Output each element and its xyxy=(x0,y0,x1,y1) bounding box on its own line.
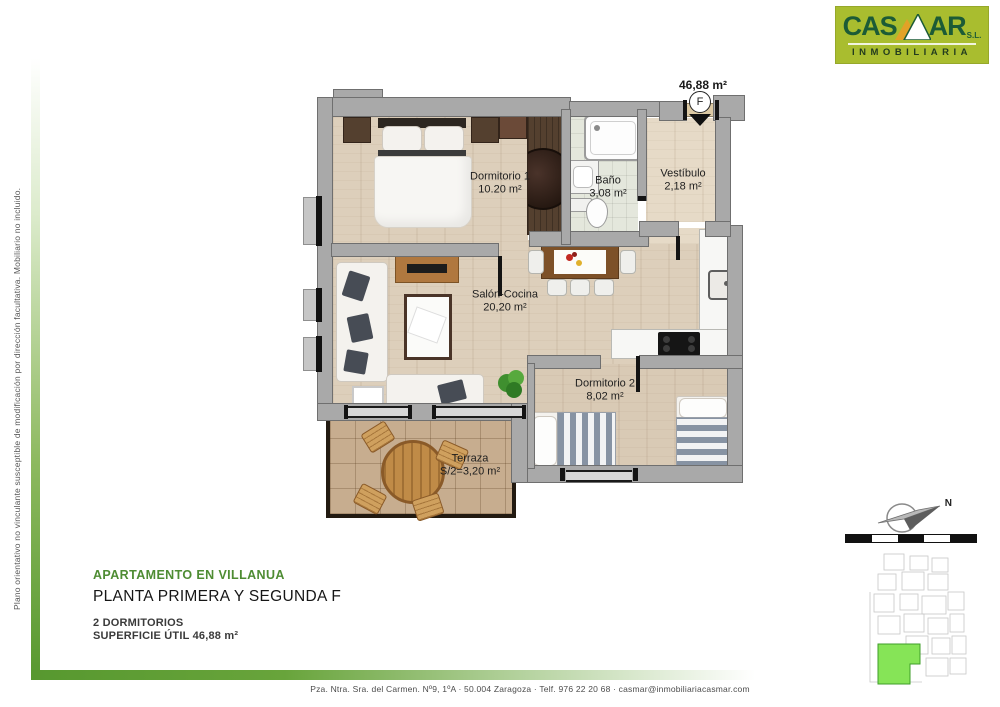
casmar-logo-wordmark: CAS AR S.L. xyxy=(843,13,982,40)
label-dormitorio1: Dormitorio 1 10.20 m² xyxy=(470,171,530,198)
tv-console xyxy=(396,256,458,282)
wardrobe-round-detail xyxy=(528,148,566,210)
wall-dorm2-left xyxy=(528,364,534,468)
sofa-pillow xyxy=(343,349,368,374)
site-key-plan xyxy=(862,552,977,692)
bed1-duvet xyxy=(374,156,472,228)
door-tick-entrance-left xyxy=(683,100,687,120)
logo-tagline: INMOBILIARIA xyxy=(848,43,976,58)
nightstand-left xyxy=(344,118,370,142)
wall-dorm2-top-left xyxy=(528,356,600,368)
room-name: Dormitorio 2 xyxy=(575,378,635,391)
wall-dorm2-top-right xyxy=(640,356,742,368)
scale-bar-segment xyxy=(846,535,872,542)
dining-table xyxy=(542,246,618,278)
room-area: S/2=3,20 m² xyxy=(440,466,500,479)
scale-bar-segment xyxy=(950,535,976,542)
bed1-pillow-left xyxy=(382,126,422,152)
highlighted-unit xyxy=(878,644,920,684)
green-frame-vertical-bar xyxy=(31,58,40,680)
north-label: N xyxy=(945,498,952,509)
compass: N xyxy=(874,498,954,536)
window-dorm1 xyxy=(316,196,322,246)
burner xyxy=(688,345,695,352)
label-dormitorio2: Dormitorio 2 8,02 m² xyxy=(575,378,635,405)
wall-vestibule-right xyxy=(716,118,730,230)
logo-text-cas: CAS xyxy=(843,13,897,40)
room-area: 3,08 m² xyxy=(589,188,626,201)
door-tick-bath xyxy=(638,196,646,201)
scale-bar-segment xyxy=(924,535,950,542)
bed2-pillow xyxy=(533,416,557,466)
listing-subtitle: PLANTA PRIMERA Y SEGUNDA F xyxy=(93,588,341,606)
room-name: Salón-Cocina xyxy=(472,289,538,302)
wall-top-bath xyxy=(570,102,660,116)
burner xyxy=(688,336,695,343)
scale-bar-segment xyxy=(872,535,898,542)
window-tick xyxy=(432,405,436,419)
wardrobe-dormitorio1 xyxy=(528,114,566,234)
flowers-red xyxy=(572,252,577,257)
sofa-long xyxy=(336,262,388,382)
window-sill-outer xyxy=(304,198,316,244)
site-plan-drawing xyxy=(862,552,977,692)
scale-bar-segment xyxy=(898,535,924,542)
room-area: 20,20 m² xyxy=(472,302,538,315)
dining-chair xyxy=(547,279,567,296)
label-salon-cocina: Salón-Cocina 20,20 m² xyxy=(472,289,538,316)
window-salon-2 xyxy=(316,336,322,372)
label-terraza: Terraza S/2=3,20 m² xyxy=(440,453,500,480)
wall-bath-right xyxy=(638,110,646,200)
room-name: Vestíbulo xyxy=(660,168,705,181)
room-name: Dormitorio 1 xyxy=(470,171,530,184)
window-tick xyxy=(408,405,412,419)
window-tick xyxy=(522,405,526,419)
north-arrow-icon xyxy=(874,498,954,536)
wall-vestibule-bottom-right xyxy=(706,222,730,236)
cooktop xyxy=(658,332,700,356)
sofa-pillow xyxy=(342,270,371,302)
window-sill-outer xyxy=(304,290,316,320)
window-tick xyxy=(560,468,565,481)
label-vestibulo: Vestíbulo 2,18 m² xyxy=(660,168,705,195)
listing-bedrooms: 2 DORMITORIOS xyxy=(93,617,183,629)
dining-chair xyxy=(570,279,590,296)
wall-vestibule-bottom-left xyxy=(640,222,678,236)
wall-top-left xyxy=(320,98,570,116)
room-area: 8,02 m² xyxy=(575,391,635,404)
bed3-striped-blanket xyxy=(676,417,730,468)
entrance-arrow-icon xyxy=(689,114,711,126)
terrace-door-glass-2 xyxy=(436,406,522,418)
wall-right xyxy=(728,226,742,482)
coffee-table xyxy=(404,294,452,360)
room-name: Baño xyxy=(589,175,626,188)
plant xyxy=(496,370,526,400)
footer-address: Pza. Ntra. Sra. del Carmen. Nº9, 1ºA · 5… xyxy=(280,684,780,694)
terrace-door-glass-1 xyxy=(348,406,408,418)
scale-bar xyxy=(845,534,977,543)
listing-useful-area: SUPERFICIE ÚTIL 46,88 m² xyxy=(93,630,238,642)
window-salon-1 xyxy=(316,288,322,322)
burner xyxy=(663,345,670,352)
total-area-label: 46,88 m² xyxy=(679,78,727,92)
listing-title: APARTAMENTO EN VILLANUA xyxy=(93,568,285,582)
window-sill-outer xyxy=(304,338,316,370)
logo-text-sl: S.L. xyxy=(967,32,982,40)
label-bano: Baño 3,08 m² xyxy=(589,175,626,202)
sofa-pillow xyxy=(437,379,467,405)
sofa-pillow xyxy=(347,313,374,343)
room-area: 2,18 m² xyxy=(660,181,705,194)
wall-dorm1-bottom xyxy=(332,244,498,256)
door-leaf-dorm2 xyxy=(636,356,640,392)
logo-mountain-icon xyxy=(895,14,931,40)
unit-letter-badge: F xyxy=(689,91,711,113)
wall-bath-bottom xyxy=(530,232,648,246)
wall-bath-left xyxy=(562,110,570,244)
window-dorm2 xyxy=(566,470,632,482)
window-tick xyxy=(344,405,348,419)
casmar-logo: CAS AR S.L. INMOBILIARIA xyxy=(836,7,988,63)
bathtub xyxy=(584,115,642,161)
shelf-unit xyxy=(500,116,526,138)
door-leaf-kitchen xyxy=(676,236,680,260)
logo-text-ar: AR xyxy=(929,13,966,40)
vertical-disclaimer-text: Plano orientativo no vinculante suscepti… xyxy=(12,140,22,610)
door-tick-entrance-right xyxy=(715,100,719,120)
room-area: 10.20 m² xyxy=(470,184,530,197)
plant-leaves xyxy=(506,382,522,398)
nightstand-right xyxy=(472,118,498,142)
dining-chair xyxy=(620,250,636,274)
tv xyxy=(407,264,447,273)
room-name: Terraza xyxy=(440,453,500,466)
floor-plan-sheet: Plano orientativo no vinculante suscepti… xyxy=(0,0,1000,707)
dining-chair xyxy=(528,250,544,274)
window-tick xyxy=(633,468,638,481)
coffee-table-cloth xyxy=(407,306,447,343)
bed2-striped-blanket xyxy=(557,412,616,470)
dining-chair xyxy=(594,279,614,296)
bed1-pillow-right xyxy=(424,126,464,152)
flowers-yellow xyxy=(576,260,582,266)
bathtub-drain xyxy=(594,125,600,131)
burner xyxy=(663,336,670,343)
bed3-pillow xyxy=(679,398,727,418)
green-frame-horizontal-bar xyxy=(31,670,755,680)
